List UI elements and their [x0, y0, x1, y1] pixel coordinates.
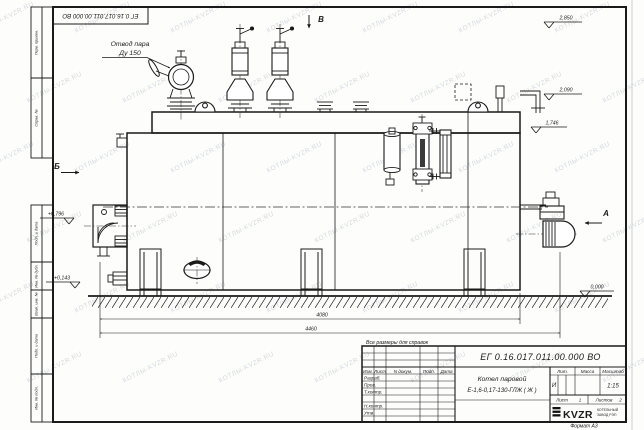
ground [88, 296, 612, 308]
row-utv: Утв. [364, 411, 374, 416]
header-sign: Подп. [423, 369, 435, 374]
callout-line2: Ду 150 [118, 50, 141, 57]
doc-number: ЕГ 0.16.017.011.00.000 ВО [480, 352, 601, 362]
format-label: Формат А3 [570, 424, 598, 430]
row-nkontr: Н.контр. [364, 404, 383, 409]
margin-box-label: Подп. и дата [35, 334, 39, 358]
drawing-canvas: Перв. примен. Справ. № Подп. и дата Инв.… [0, 0, 644, 430]
margin-box-label: Перв. примен. [35, 30, 39, 55]
dim-4080: 4080 [316, 313, 328, 319]
elevation-1746: 1,746 [531, 121, 567, 134]
elevation-value: +0,143 [54, 276, 70, 282]
value-lit: И [552, 383, 557, 389]
view-label-b: Б [54, 162, 60, 171]
elevation-2090: 2,090 [544, 88, 582, 101]
header-izm: Изм. [363, 369, 373, 374]
value-sheets: 2 [618, 398, 622, 403]
header-scale: Масштаб [602, 369, 624, 374]
elevation-value: +0,796 [48, 212, 64, 218]
elevation-value: 1,746 [546, 121, 559, 127]
label-sheet: Лист [555, 398, 568, 403]
safety-valves [227, 24, 294, 118]
elevation-value: 0,000 [591, 285, 604, 291]
feed-pump [516, 192, 578, 247]
margin-box-label: Подп. и дата [35, 222, 39, 246]
value-scale: 1:15 [607, 384, 619, 390]
sheet-frame [53, 0, 632, 430]
boiler-drawing [84, 24, 578, 296]
product-designation: Е-1,6-0,17-130-ГЛЖ ( Ж ) [467, 388, 536, 394]
elevation-0143: +0,143 [46, 276, 80, 289]
row-razrab: Разраб. [364, 376, 381, 381]
header-list: Лист [373, 369, 386, 374]
burner [84, 205, 136, 256]
level-gauge-assembly [384, 114, 451, 192]
margin-box-label: Инв. № дубл. [35, 264, 39, 287]
front-nozzles [108, 134, 127, 285]
view-label-a: А [602, 209, 609, 218]
steam-outlet-callout: Отвод пара Ду 150 [102, 40, 170, 68]
product-name: Котел паровой [478, 375, 527, 383]
logo-subtext-2: ЗАВОД РЭП [597, 413, 617, 417]
drawing-sheet: КОТЛЫ-KVZR.RUКОТЛЫ-KVZR.RUКОТЛЫ-KVZR.RUК… [0, 0, 644, 430]
title-block: ЕГ 0.16.017.011.00.000 ВО Котел паровой … [362, 346, 626, 422]
kvzr-logo: KVZR КОТЕЛЬНЫЙ ЗАВОД РЭП [553, 407, 619, 421]
reference-note: Все размеры для справок [366, 340, 429, 346]
value-sheet: 1 [579, 398, 582, 403]
logo-text: KVZR [563, 409, 593, 421]
row-prov: Пров. [364, 383, 376, 388]
header-mass: Масса [581, 369, 595, 374]
elevation-0796: +0,796 [40, 212, 74, 225]
margin-box-label: Инв. № подл. [35, 386, 39, 410]
elevation-value: 2,850 [559, 16, 573, 22]
lifting-lugs [195, 102, 488, 112]
logo-bars-icon [553, 407, 561, 409]
margin-box-label: Справ. № [35, 109, 39, 126]
logo-subtext-1: КОТЕЛЬНЫЙ [597, 408, 619, 412]
header-date: Дата [439, 369, 453, 374]
top-stamp-number: ЕГ 0.16.017.011.00.000 ВО [62, 12, 138, 19]
label-sheets: Листов [595, 398, 613, 403]
margin-box-label: Взам. инв. № [35, 292, 39, 315]
header-lit: Лит. [556, 369, 568, 374]
header-doc: N докум. [394, 369, 413, 374]
top-stamp: ЕГ 0.16.017.011.00.000 ВО [53, 7, 148, 24]
dimensions: 4080 4460 [100, 252, 560, 338]
view-label-v: В [318, 15, 324, 24]
elevation-value: 2,090 [559, 88, 573, 94]
callout-line1: Отвод пара [111, 40, 150, 48]
manhole [183, 257, 211, 284]
dim-4460: 4460 [305, 327, 317, 333]
top-stubs [317, 84, 545, 113]
row-tkontr: Т.контр. [364, 390, 383, 395]
elevation-2850: 2,850 [544, 16, 582, 29]
